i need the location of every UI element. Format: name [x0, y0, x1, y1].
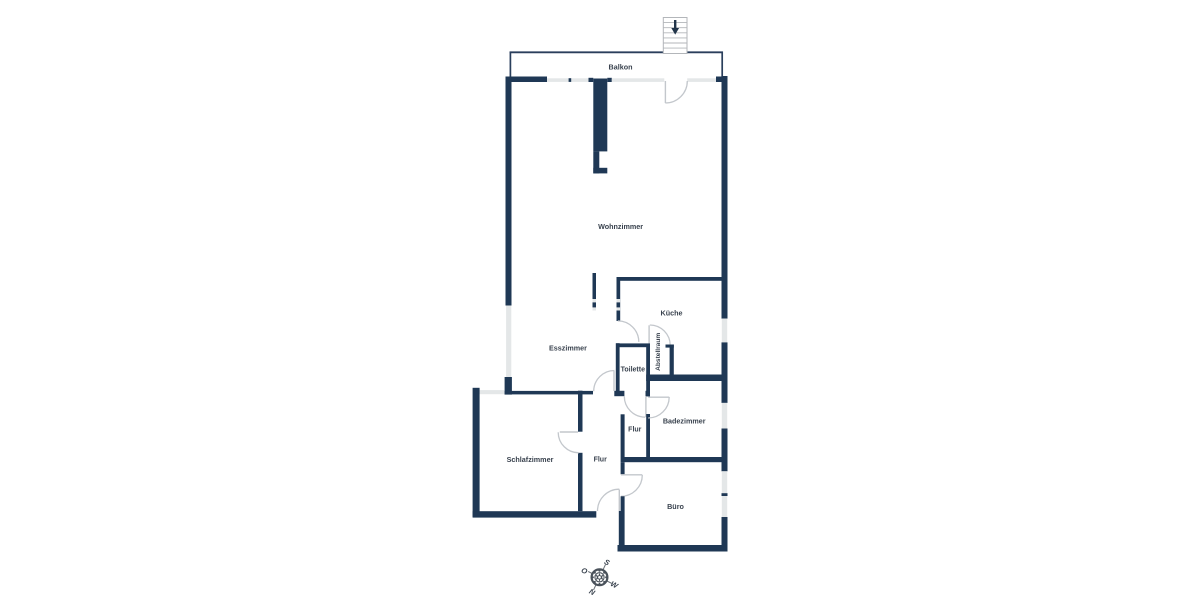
svg-text:Büro: Büro	[667, 502, 684, 511]
svg-text:S: S	[603, 557, 612, 567]
svg-text:Küche: Küche	[661, 308, 683, 317]
svg-text:Schlafzimmer: Schlafzimmer	[507, 455, 554, 464]
svg-text:Esszimmer: Esszimmer	[549, 344, 587, 353]
svg-text:W: W	[609, 579, 620, 591]
svg-text:N: N	[588, 587, 597, 598]
svg-text:Badezimmer: Badezimmer	[663, 416, 706, 425]
svg-text:Wohnzimmer: Wohnzimmer	[598, 222, 643, 231]
svg-text:Abstellraum: Abstellraum	[655, 333, 662, 371]
svg-text:Flur: Flur	[628, 426, 641, 433]
svg-text:Balkon: Balkon	[609, 63, 633, 72]
svg-text:Flur: Flur	[594, 457, 607, 464]
svg-text:O: O	[580, 565, 589, 576]
svg-text:Toilette: Toilette	[621, 367, 645, 374]
